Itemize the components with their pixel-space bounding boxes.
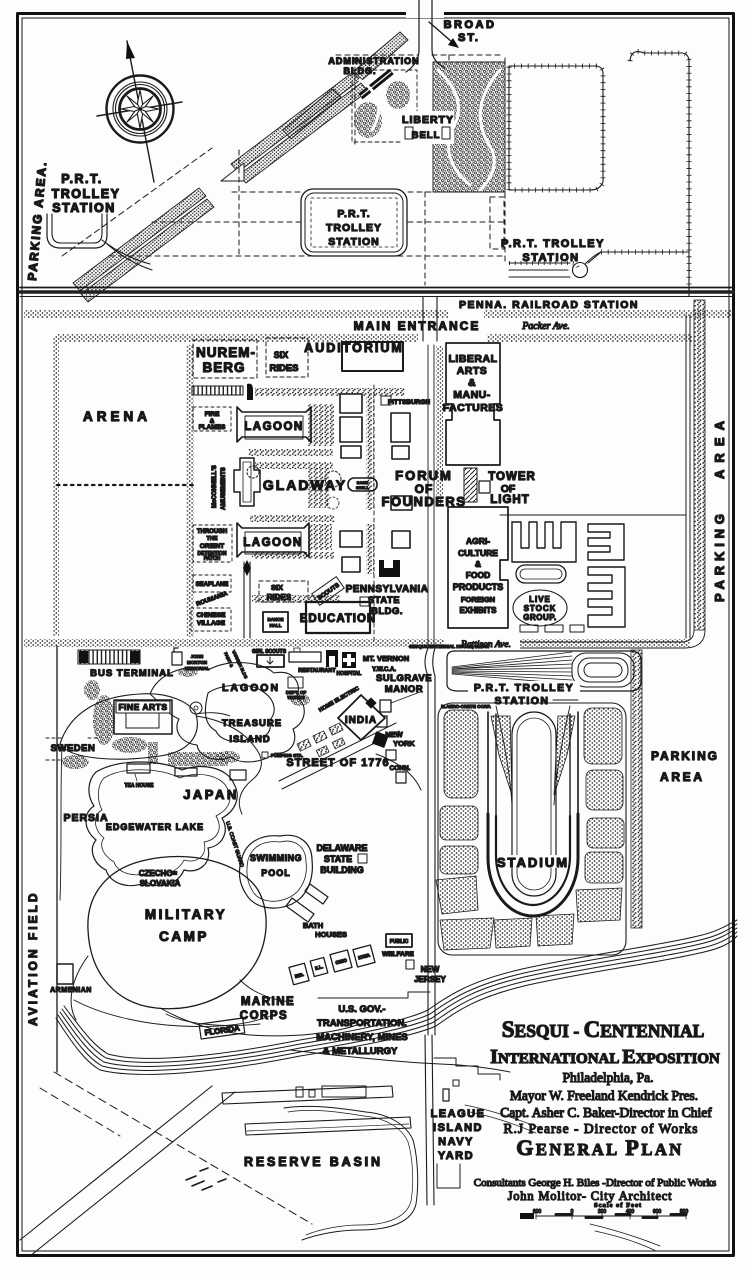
svg-text:NAVY: NAVY — [438, 1136, 474, 1148]
svg-text:LAGOON: LAGOON — [222, 682, 280, 694]
svg-text:STADIUM: STADIUM — [497, 855, 569, 870]
svg-text:Capt. Asher C. Baker-Director: Capt. Asher C. Baker-Director in Chief — [500, 1105, 712, 1120]
svg-text:FIRE: FIRE — [205, 411, 220, 418]
svg-text:PENNA. RAILROAD STATION: PENNA. RAILROAD STATION — [459, 299, 639, 311]
svg-text:EDGEWATER LAKE: EDGEWATER LAKE — [106, 822, 204, 832]
svg-text:RIDES: RIDES — [267, 593, 292, 602]
svg-text:EDUCATION: EDUCATION — [300, 613, 377, 625]
svg-text:ADMINISTRATION: ADMINISTRATION — [328, 56, 419, 66]
svg-text:RIDES: RIDES — [269, 363, 298, 374]
svg-text:GLADWAY: GLADWAY — [263, 477, 347, 493]
svg-text:&: & — [475, 559, 481, 569]
svg-text:CULTURE: CULTURE — [458, 548, 498, 558]
svg-text:YARD: YARD — [438, 1150, 474, 1162]
svg-text:Philadelphia, Pa.: Philadelphia, Pa. — [562, 1070, 653, 1085]
svg-text:JOHN: JOHN — [191, 654, 204, 659]
svg-text:AVIATION FIELD: AVIATION FIELD — [26, 890, 40, 1026]
svg-text:YORK: YORK — [393, 739, 415, 748]
svg-text:STATE: STATE — [368, 595, 400, 606]
svg-text:STATION: STATION — [52, 201, 116, 215]
svg-text:Scale of Feet: Scale of Feet — [594, 1202, 642, 1209]
svg-text:NEW: NEW — [421, 965, 440, 974]
svg-text:FINE ARTS: FINE ARTS — [118, 702, 167, 712]
svg-text:ISLAND: ISLAND — [433, 1122, 483, 1134]
svg-text:SESQUI - CENTENNIAL: SESQUI - CENTENNIAL — [502, 1017, 705, 1042]
svg-text:SIX: SIX — [274, 350, 289, 360]
svg-text:PARKING: PARKING — [651, 749, 717, 763]
svg-text:TOWER: TOWER — [488, 471, 536, 483]
svg-text:FORUM: FORUM — [395, 468, 453, 483]
svg-text:U.S. GOV.-: U.S. GOV.- — [338, 1004, 385, 1015]
svg-text:BUS TERMINAL: BUS TERMINAL — [90, 668, 174, 679]
svg-text:SEAPLANE: SEAPLANE — [196, 582, 229, 588]
svg-text:MANU-: MANU- — [453, 389, 491, 401]
svg-text:LAGOON: LAGOON — [243, 537, 302, 549]
svg-text:AMUSEMENTS: AMUSEMENTS — [221, 467, 227, 510]
svg-text:AGRI-: AGRI- — [466, 536, 490, 546]
svg-text:MORTON: MORTON — [187, 660, 207, 665]
svg-text:WELFARE: WELFARE — [382, 951, 414, 958]
svg-text:ST.: ST. — [458, 32, 480, 44]
svg-text:BATH: BATH — [303, 921, 323, 930]
svg-text:MT. VERNON: MT. VERNON — [363, 654, 409, 663]
svg-text:JERSEY: JERSEY — [414, 975, 446, 984]
svg-text:BLDG.: BLDG. — [344, 66, 377, 76]
svg-text:McCONNELL'S: McCONNELL'S — [212, 465, 218, 508]
svg-text:LIVE: LIVE — [529, 595, 551, 604]
svg-text:BELL: BELL — [412, 130, 441, 141]
svg-text:AUDITORIUM: AUDITORIUM — [304, 341, 404, 355]
svg-text:P.R.T.: P.R.T. — [337, 208, 370, 220]
svg-text:TRANSPORTATION.: TRANSPORTATION. — [317, 1018, 407, 1029]
svg-text:SIX: SIX — [271, 583, 283, 592]
svg-text:SLOVAKIA: SLOVAKIA — [140, 879, 181, 888]
svg-text:STATION: STATION — [494, 695, 549, 707]
svg-text:PUBLIC: PUBLIC — [390, 939, 409, 945]
svg-text:SWEDEN: SWEDEN — [51, 743, 96, 754]
svg-text:SESQUICENTENNIAL HOUSE, BLDG.: SESQUICENTENNIAL HOUSE, BLDG. — [409, 644, 489, 649]
svg-text:MARINE: MARINE — [241, 996, 295, 1008]
svg-text:PENNSYLVANIA: PENNSYLVANIA — [346, 584, 429, 595]
svg-text:ARTS: ARTS — [457, 365, 488, 377]
svg-text:&: & — [468, 377, 476, 389]
svg-text:CHINESE: CHINESE — [197, 612, 227, 619]
svg-text:STATION: STATION — [522, 252, 579, 264]
svg-text:P.R.T.: P.R.T. — [61, 172, 102, 186]
svg-text:SWIMMING: SWIMMING — [250, 853, 302, 863]
svg-text:DANCE: DANCE — [267, 617, 283, 622]
svg-text:FOOD: FOOD — [466, 570, 491, 580]
svg-text:BROAD: BROAD — [444, 19, 497, 31]
svg-text:TROLLEY: TROLLEY — [52, 187, 121, 201]
svg-text:Mayor W. Freeland Kendrick Pre: Mayor W. Freeland Kendrick Pres. — [510, 1088, 698, 1103]
svg-text:ORIENT: ORIENT — [200, 543, 225, 550]
svg-text:CAMP: CAMP — [159, 929, 209, 944]
svg-text:POOL: POOL — [261, 868, 291, 878]
svg-text:THE: THE — [207, 536, 218, 542]
svg-text:NEW: NEW — [385, 730, 403, 739]
svg-text:INDIA: INDIA — [345, 715, 377, 726]
svg-text:Packer Ave.: Packer Ave. — [521, 321, 570, 332]
svg-text:EXHIBITS: EXHIBITS — [460, 606, 498, 615]
svg-text:HALL: HALL — [270, 623, 282, 628]
svg-text:JAPAN: JAPAN — [183, 787, 239, 802]
svg-text:LEAGUE: LEAGUE — [431, 1108, 486, 1120]
svg-text:TEA HOUSE: TEA HOUSE — [125, 783, 155, 789]
svg-text:MAIN ENTRANCE: MAIN ENTRANCE — [354, 319, 481, 333]
svg-text:R.J Pearse - Director of Wor: R.J Pearse - Director of Works — [503, 1121, 698, 1136]
svg-text:SULGRAVE: SULGRAVE — [376, 673, 432, 684]
svg-text:P.R.T. TROLLEY: P.R.T. TROLLEY — [501, 238, 605, 250]
svg-text:FLAMES: FLAMES — [199, 424, 226, 431]
svg-text:ISLAND: ISLAND — [229, 734, 270, 745]
svg-text:VILLAGE: VILLAGE — [197, 620, 226, 627]
svg-text:HOUSES: HOUSES — [315, 930, 347, 939]
svg-text:TROLLEY: TROLLEY — [326, 222, 382, 234]
svg-text:CZECHO=: CZECHO= — [139, 869, 178, 878]
svg-text:DELAWARE: DELAWARE — [316, 843, 367, 853]
svg-text:PITTSBURGH: PITTSBURGH — [388, 399, 431, 406]
svg-text:LIGHT: LIGHT — [490, 494, 530, 506]
svg-text:PUMPING STA.: PUMPING STA. — [271, 753, 303, 758]
svg-text:PRODUCTS: PRODUCTS — [453, 582, 504, 592]
svg-text:THROUGH: THROUGH — [197, 529, 227, 535]
svg-text:PATCH: PATCH — [204, 556, 221, 562]
svg-text:RESTAURANT: RESTAURANT — [298, 668, 336, 674]
svg-text:STOCK: STOCK — [524, 604, 557, 613]
svg-text:STATE: STATE — [324, 854, 352, 864]
svg-text:STATION: STATION — [328, 236, 380, 248]
svg-text:Consultants George H. Biles -D: Consultants George H. Biles -Director of… — [474, 1177, 717, 1189]
svg-text:HOSPITAL: HOSPITAL — [337, 671, 362, 677]
svg-text:STREET OF 1776: STREET OF 1776 — [286, 757, 389, 769]
svg-text:GROUP.: GROUP. — [523, 613, 557, 622]
svg-text:P.R.T. TROLLEY: P.R.T. TROLLEY — [474, 682, 574, 694]
svg-text:LIBERTY: LIBERTY — [402, 114, 454, 126]
svg-text:LAGOON: LAGOON — [244, 421, 303, 433]
svg-text:BUILDING: BUILDING — [320, 865, 364, 875]
svg-text:LIBERAL: LIBERAL — [449, 353, 498, 365]
svg-text:ARMENIAN: ARMENIAN — [50, 987, 92, 994]
svg-text:NUREM-: NUREM- — [196, 345, 256, 360]
svg-text:600: 600 — [533, 1209, 542, 1215]
svg-text:BERG: BERG — [202, 360, 245, 375]
svg-text:CORPS: CORPS — [240, 1010, 288, 1022]
svg-text:FACTURES: FACTURES — [443, 402, 504, 414]
svg-text:FOREIGN: FOREIGN — [461, 595, 495, 604]
svg-text:John Molitor- City Architect: John Molitor- City Architect — [508, 1189, 673, 1203]
svg-text:ARENA: ARENA — [83, 409, 151, 424]
svg-text:MILITARY: MILITARY — [145, 907, 227, 922]
svg-text:M.AERO-CRETE CORP.: M.AERO-CRETE CORP. — [441, 704, 491, 709]
